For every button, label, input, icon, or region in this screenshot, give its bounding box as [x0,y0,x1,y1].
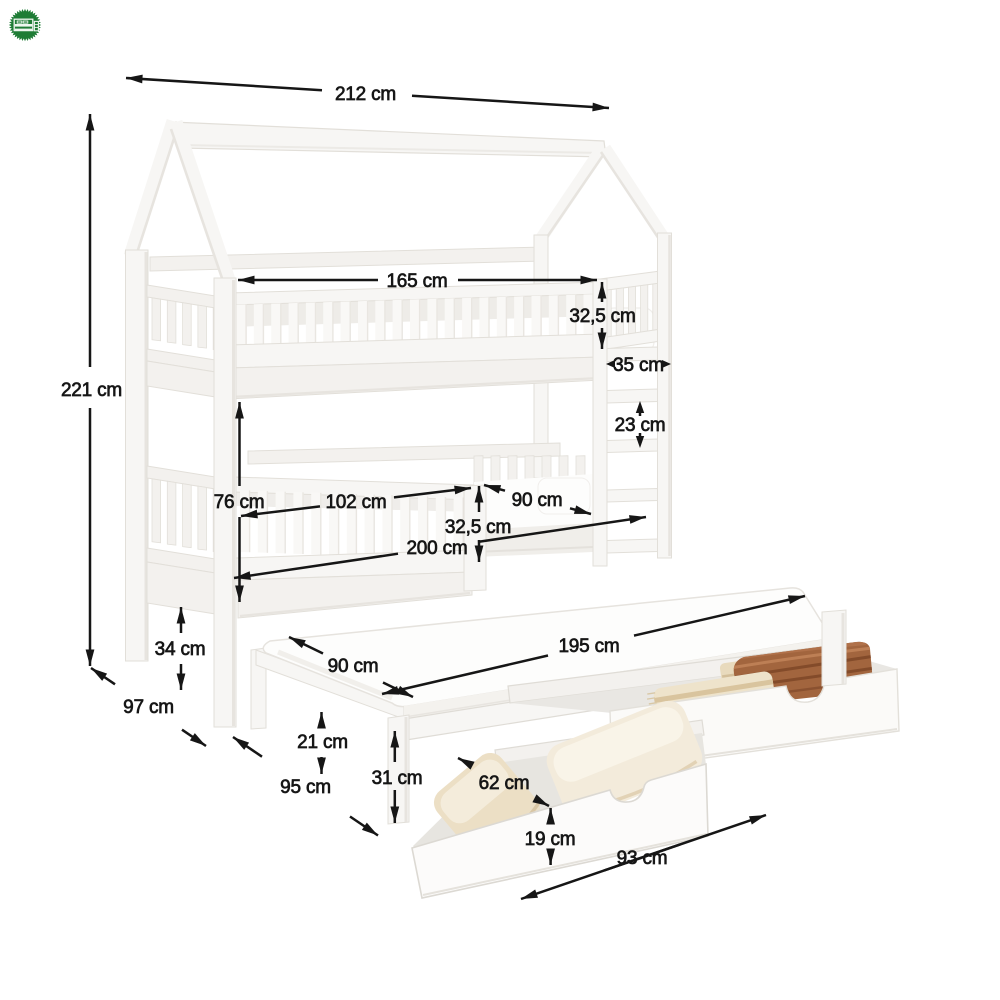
svg-text:102 cm: 102 cm [325,492,386,513]
svg-text:23 cm: 23 cm [615,415,666,436]
svg-text:97 cm: 97 cm [123,697,174,718]
svg-text:165 cm: 165 cm [386,271,447,292]
svg-text:95 cm: 95 cm [280,777,331,798]
svg-text:212 cm: 212 cm [335,84,396,105]
svg-text:34 cm: 34 cm [155,639,206,660]
svg-text:62 cm: 62 cm [479,773,530,794]
svg-text:90 cm: 90 cm [328,656,379,677]
svg-text:195 cm: 195 cm [558,636,619,657]
svg-text:35 cm: 35 cm [613,355,664,376]
svg-text:19 cm: 19 cm [525,829,576,850]
svg-text:200 cm: 200 cm [406,538,467,559]
svg-text:32,5 cm: 32,5 cm [445,517,511,538]
svg-text:31 cm: 31 cm [372,768,423,789]
svg-text:93 cm: 93 cm [617,848,668,869]
svg-text:90 cm: 90 cm [512,490,563,511]
svg-text:21 cm: 21 cm [297,732,348,753]
svg-text:221 cm: 221 cm [61,380,122,401]
svg-text:32,5 cm: 32,5 cm [569,306,635,327]
